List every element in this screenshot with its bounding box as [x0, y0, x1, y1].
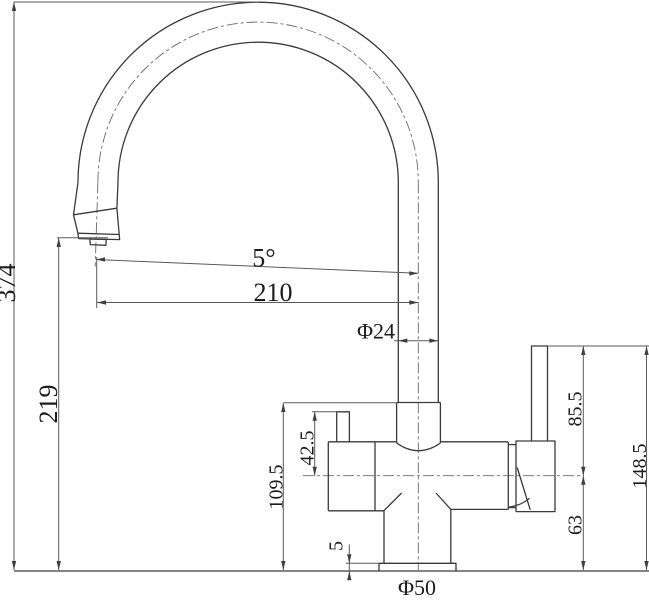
- arrow-219-bottom: [57, 561, 61, 570]
- dim-label-base-plate-thickness: 5: [326, 541, 348, 551]
- dim-label-spout-reach: 210: [254, 278, 293, 307]
- arrow-42-5-bottom: [313, 467, 317, 476]
- arrow-63-top: [581, 476, 585, 485]
- dim-label-inlet-to-center: 42.5: [297, 431, 319, 466]
- arrow-210-left: [97, 300, 106, 304]
- dim-label-handle-top-to-center: 85.5: [565, 392, 587, 427]
- arrow-42-5-top: [313, 412, 317, 421]
- arrow-phi24-left: [398, 339, 407, 343]
- dim-label-spout-angle: 5°: [252, 244, 275, 273]
- arrow-5-lower: [347, 571, 351, 580]
- arrow-phi24-right: [429, 339, 438, 343]
- handle-lever: [532, 346, 548, 441]
- centerlines: [95, 22, 583, 570]
- arrow-374-top: [12, 2, 16, 11]
- cone-right-chamfer: [436, 493, 451, 509]
- arrow-210-right: [409, 300, 418, 304]
- spout-arc-centerline: [98, 22, 418, 182]
- spout-tube-right-edge: [117, 182, 118, 208]
- arrow-109-5-top: [281, 403, 285, 412]
- arrow-5-upper: [347, 554, 351, 563]
- dimension-labels: 374 219 5° 210 Φ24 42.5 109.5 5 Φ50 85.5…: [0, 244, 649, 600]
- handle-cap-slant: [517, 468, 530, 510]
- dim-label-body-top-height: 109.5: [266, 465, 288, 510]
- technical-drawing-canvas: 374 219 5° 210 Φ24 42.5 109.5 5 Φ50 85.5…: [0, 0, 649, 600]
- arrow-85-5-bottom: [581, 467, 585, 476]
- inlet-stub: [337, 412, 350, 442]
- dim-label-handle-overall-height: 148.5: [629, 444, 649, 489]
- spout-inner-arc: [118, 42, 398, 182]
- part-outline: [14, 2, 649, 571]
- aerator-nub: [90, 239, 106, 245]
- arrow-109-5-bottom: [281, 561, 285, 570]
- dim-label-center-to-base: 63: [565, 515, 587, 535]
- dim-label-spout-pipe-diameter: Φ24: [357, 319, 395, 344]
- faucet-technical-drawing: 374 219 5° 210 Φ24 42.5 109.5 5 Φ50 85.5…: [0, 0, 649, 600]
- arrow-63-bottom: [581, 561, 585, 570]
- handle-cap: [516, 441, 555, 512]
- arrow-85-5-top: [581, 346, 585, 355]
- cone-left-chamfer: [384, 493, 402, 511]
- dim-label-base-diameter: Φ50: [398, 575, 436, 600]
- arrow-219-top: [57, 238, 61, 247]
- dim-label-overall-height: 374: [0, 264, 21, 303]
- arrow-374-bottom: [12, 561, 16, 570]
- arrow-5deg-left: [96, 257, 105, 261]
- base-plate: [379, 563, 456, 571]
- arrow-148-5-top: [644, 346, 648, 355]
- dimension-lines: [14, 2, 649, 578]
- spout-tip-centerline: [95, 182, 98, 266]
- arrow-5deg-right: [409, 271, 418, 275]
- dimension-arrows: [12, 2, 649, 580]
- dim-label-spout-outlet-height: 219: [34, 385, 63, 424]
- spout-outer-arc: [78, 2, 438, 182]
- spout-tube-left-edge: [74, 182, 79, 215]
- arrow-148-5-bottom: [644, 561, 648, 570]
